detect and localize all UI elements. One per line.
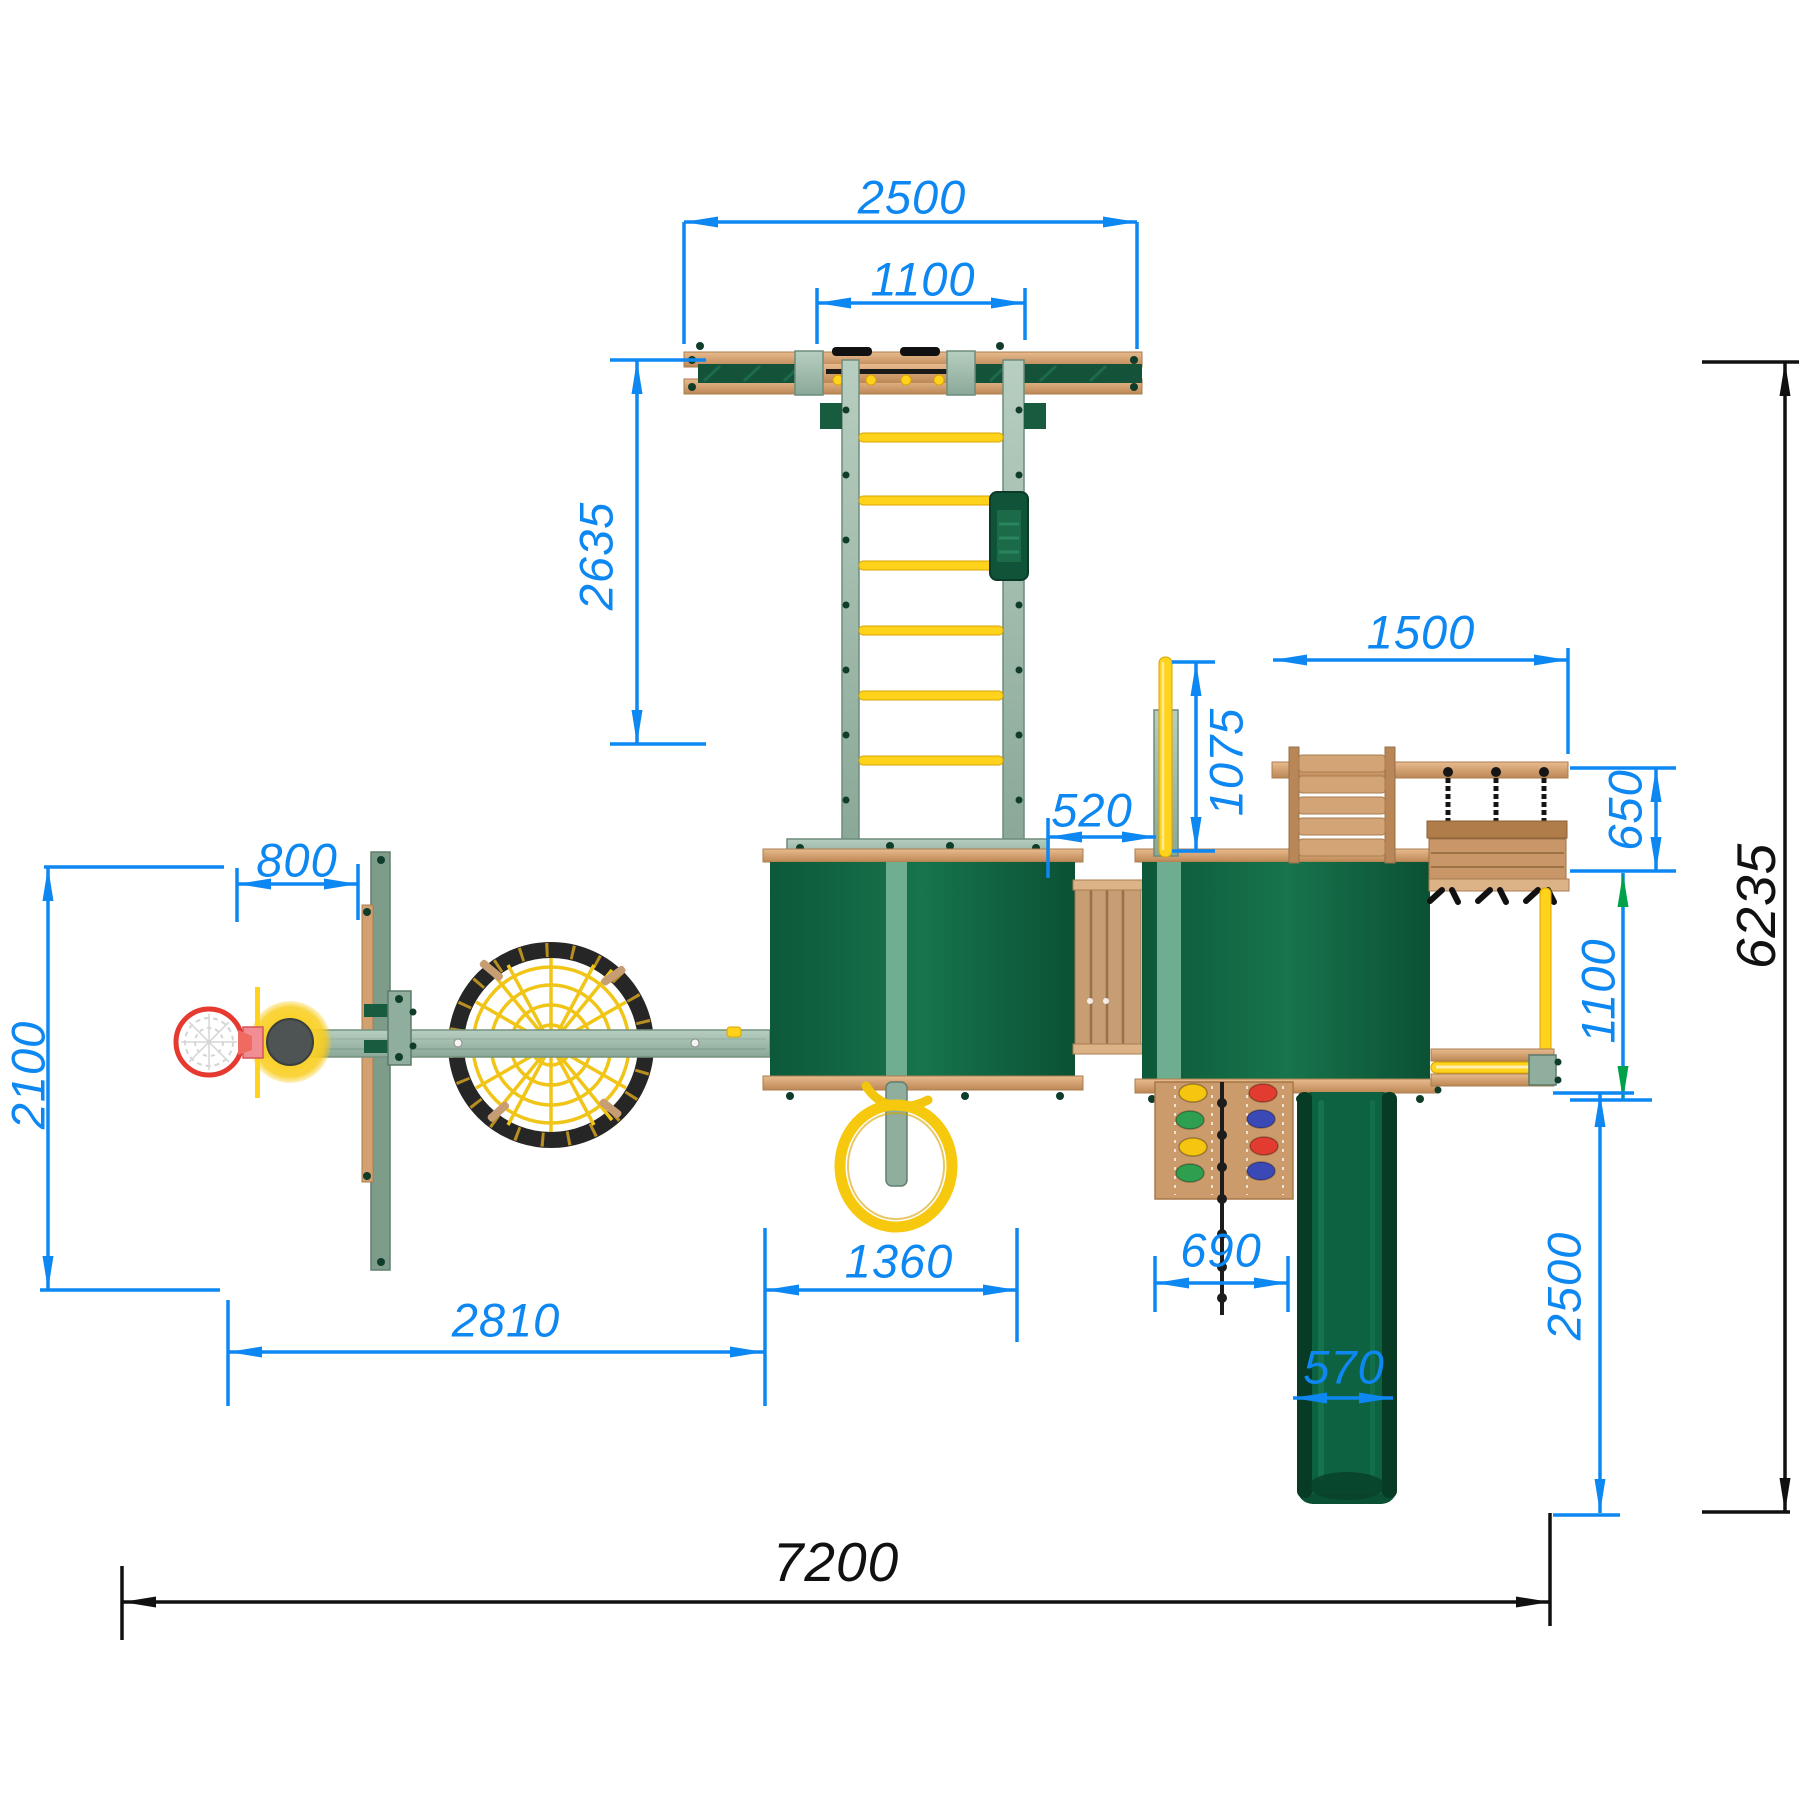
tower-1-roof [763,849,1083,1100]
dim-label-beam-span: 2500 [858,170,967,225]
dim-label-swing-seat-depth: 650 [1598,769,1653,850]
dim-label-ladder-run: 2635 [569,502,624,611]
gym-ring [840,1082,952,1227]
swing-beam [684,342,1142,395]
grip-pad [832,347,872,356]
dim-label-tower-width: 1360 [845,1234,954,1289]
dim-label-left-wing-depth: 2100 [1,1021,56,1130]
slide [1297,1092,1397,1504]
dim-label-slide-width: 570 [1303,1340,1384,1395]
rock-wall [1155,1082,1293,1315]
monkey-bar-ladder [820,360,1046,845]
playground-plan-drawing: .dl{stroke:#0d87f2;stroke-width:3.5;fill… [0,0,1800,1800]
gym-bar [1431,1049,1562,1094]
climbing-ramp [1289,747,1395,863]
swing-rope-ends [1430,890,1554,902]
support-beam [262,1027,770,1057]
dimension-left-wing-depth [40,867,224,1290]
dim-label-overall-depth: 6235 [1724,843,1788,969]
dim-label-left-span: 2810 [452,1293,561,1348]
ladder-rungs [859,433,1003,765]
dim-label-slide-run: 2500 [1537,1232,1592,1341]
dim-label-rock-wall-width: 690 [1180,1223,1261,1278]
dim-label-tower-gap: 520 [1051,783,1132,838]
dim-label-hoop-offset: 800 [256,833,337,888]
dim-label-pole-drop: 1075 [1199,708,1254,817]
hoop-net [181,1014,237,1070]
hoop-mount [267,1019,313,1065]
backboard-post [362,852,390,1270]
dim-label-monkey-bars-span: 1100 [870,252,975,307]
tower-2-roof [1135,849,1437,1103]
dim-label-overall-width: 7200 [773,1530,899,1594]
hanging-swing [1427,767,1569,902]
dimension-swing-bay-width [1273,648,1568,754]
beam-clip [727,1027,741,1037]
dim-label-bar-drop: 1100 [1571,938,1626,1043]
dimension-ladder-run [610,360,706,744]
basketball-hoop [176,987,331,1098]
ladder-bolts [843,407,1023,804]
grip-pad [900,347,940,356]
bridge [1073,880,1143,1054]
dim-label-swing-bay-width: 1500 [1367,605,1476,660]
fireman-pole [1154,657,1178,857]
gym-bar-pole [1540,888,1551,1058]
